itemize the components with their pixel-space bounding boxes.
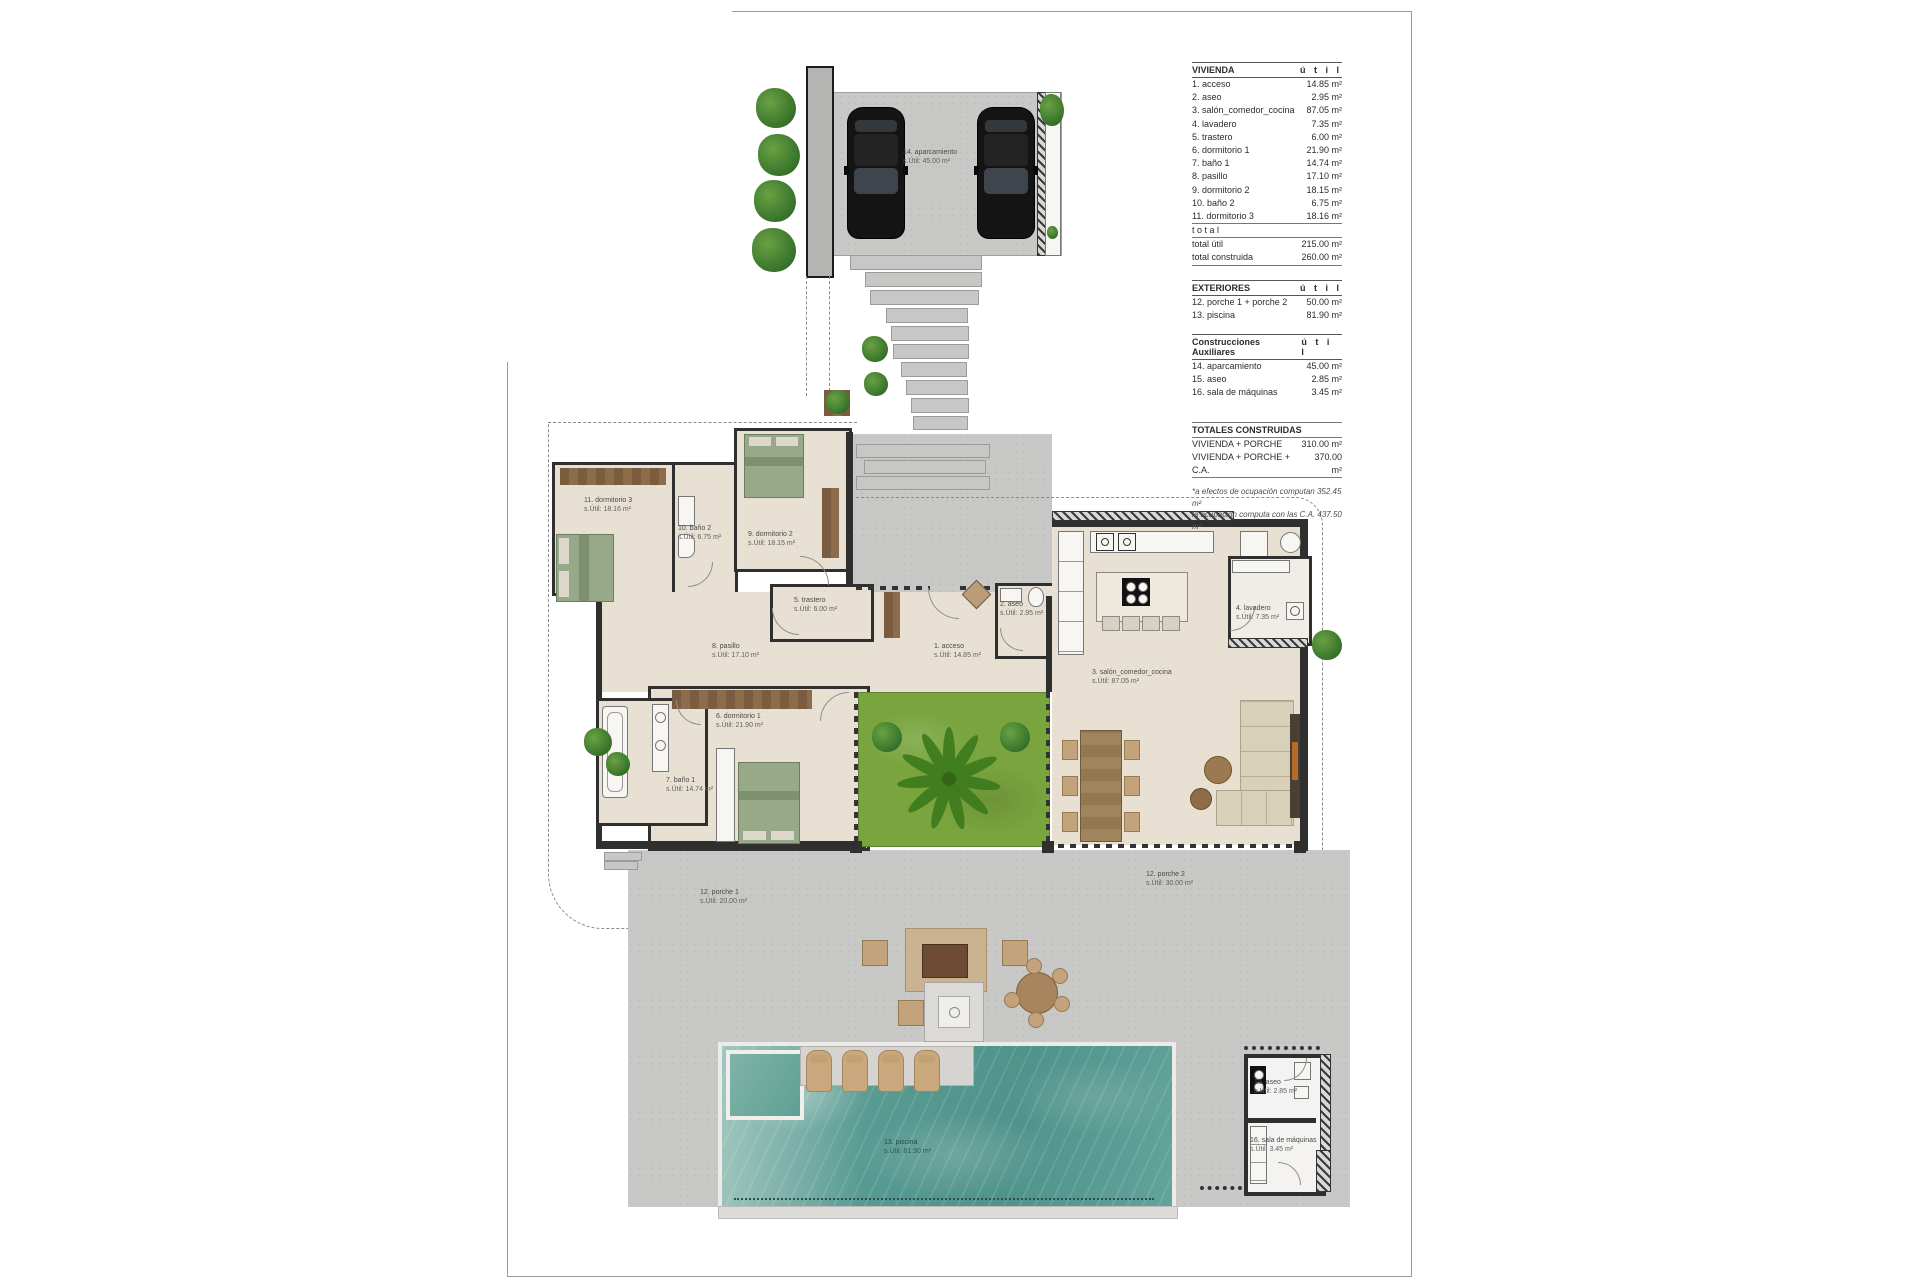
entry-glass-wall xyxy=(856,586,930,590)
wall-outbuilding-divider xyxy=(1248,1118,1316,1123)
dining-chair xyxy=(1062,740,1078,760)
fireplace-accent xyxy=(1292,742,1298,780)
bed-fold xyxy=(739,791,799,800)
room-label-dormitorio-1: 6. dormitorio 1s.Útil: 21.90 m² xyxy=(716,712,763,731)
room-label-bano-2: 10. baño 2s.Útil: 6.75 m² xyxy=(678,524,721,543)
sheet-border-top xyxy=(732,11,1412,12)
sink-bowl xyxy=(655,740,666,751)
planter-bush-icon xyxy=(1040,94,1064,126)
bush-icon xyxy=(872,722,902,752)
legend-row: 10. baño 26.75 m² xyxy=(1192,197,1342,210)
legend-row: 1. acceso14.85 m² xyxy=(1192,78,1342,91)
legend-row: VIVIENDA + PORCHE + C.A.370.00 m² xyxy=(1192,451,1342,478)
car-mirror-left xyxy=(974,166,979,175)
room-label-pasillo: 8. pasillos.Útil: 17.10 m² xyxy=(712,642,759,661)
step xyxy=(856,444,990,458)
dashed-guide xyxy=(806,276,808,396)
legend-title: Construcciones Auxiliares xyxy=(1192,337,1301,357)
step xyxy=(911,398,969,413)
pool-platform xyxy=(924,982,984,1042)
legend-row: 8. pasillo17.10 m² xyxy=(1192,170,1342,183)
room-label-porche-2: 12. porche 2s.Útil: 30.00 m² xyxy=(1146,870,1193,889)
coffee-table xyxy=(922,944,968,978)
legend-section-auxiliares: Construcciones Auxiliaresú t i l 14. apa… xyxy=(1192,334,1342,400)
legend-panel: VIVIENDAú t i l 1. acceso14.85 m² 2. ase… xyxy=(1192,62,1342,532)
legend-total-word: t o t a l xyxy=(1192,223,1342,238)
legend-row: total útil215.00 m² xyxy=(1192,238,1342,251)
step xyxy=(850,255,982,270)
kitchen-tall-cabinets xyxy=(1058,531,1084,655)
sofa-chaise xyxy=(1216,790,1294,826)
dashed-guide xyxy=(829,276,831,396)
bed-pillow xyxy=(559,538,569,564)
pouf xyxy=(1190,788,1212,810)
spa-pool xyxy=(726,1050,804,1120)
room-label-piscina: 13. piscinas.Útil: 81.90 m² xyxy=(884,1138,931,1157)
palm-tree-icon xyxy=(888,718,1010,840)
bush-icon xyxy=(584,728,612,756)
hob-burner xyxy=(1138,582,1148,592)
wardrobe xyxy=(822,488,839,558)
car-roof xyxy=(854,134,898,166)
entry-closet xyxy=(884,592,900,638)
step xyxy=(604,861,638,870)
wardrobe xyxy=(560,468,666,485)
outdoor-chair xyxy=(1052,968,1068,984)
bush-icon xyxy=(606,752,630,776)
oven-knob xyxy=(1101,538,1109,546)
step xyxy=(604,852,642,861)
step xyxy=(913,416,968,430)
car-icon xyxy=(978,108,1034,238)
garage-wall-strip xyxy=(806,66,834,278)
floorplan-sheet: 14. aparcamientos.Útil: 45.00 m² 11. dor… xyxy=(0,0,1920,1280)
bush-icon xyxy=(864,372,888,396)
planter-plant-small-icon xyxy=(1047,226,1058,239)
bar-stool xyxy=(1102,616,1120,631)
legend-row: VIVIENDA + PORCHE310.00 m² xyxy=(1192,437,1342,451)
dining-chair xyxy=(1124,776,1140,796)
car-mirror-right xyxy=(903,166,908,175)
hob-burner xyxy=(1138,594,1148,604)
sun-lounger xyxy=(842,1050,868,1092)
legend-row: 4. lavadero7.35 m² xyxy=(1192,118,1342,131)
bed xyxy=(738,762,800,844)
porch-column xyxy=(1042,841,1054,853)
bathroom-sink xyxy=(678,496,695,526)
room-label-acceso: 1. accesos.Útil: 14.85 m² xyxy=(934,642,981,661)
bed xyxy=(556,534,614,602)
pool-platform-drain xyxy=(949,1007,960,1018)
room-label-aparcamiento: 14. aparcamientos.Útil: 45.00 m² xyxy=(903,148,957,167)
wall-wing-south xyxy=(596,841,866,849)
legend-unit-header: ú t i l xyxy=(1300,65,1342,75)
car-rear-window xyxy=(985,120,1027,132)
outdoor-chair xyxy=(1054,996,1070,1012)
legend-row: total construida260.00 m² xyxy=(1192,251,1342,265)
outdoor-chair xyxy=(862,940,888,966)
legend-row: 13. piscina81.90 m² xyxy=(1192,309,1342,322)
outdoor-chair xyxy=(1002,940,1028,966)
car-mirror-right xyxy=(1033,166,1038,175)
bar-stool xyxy=(1122,616,1140,631)
step xyxy=(891,326,969,341)
car-roof xyxy=(984,134,1028,166)
step xyxy=(893,344,969,359)
legend-section-exteriores: EXTERIORESú t i l 12. porche 1 + porche … xyxy=(1192,280,1342,322)
step xyxy=(856,476,990,490)
bed-pillow xyxy=(749,437,771,446)
bush-icon xyxy=(758,134,800,176)
step xyxy=(886,308,968,323)
hatched-wall-lavadero xyxy=(1228,638,1308,648)
bush-icon xyxy=(1000,722,1030,752)
sofa xyxy=(1240,700,1294,802)
hatched-wall-outbuilding xyxy=(1316,1150,1331,1192)
pool-edge-dotted xyxy=(734,1198,1154,1200)
room-label-dormitorio-2: 9. dormitorio 2s.Útil: 18.15 m² xyxy=(748,530,795,549)
room-label-aseo-15: 15. aseos.Útil: 2.85 m² xyxy=(1254,1078,1297,1097)
wall-salon-left xyxy=(1046,596,1052,692)
room-label-bano-1: 7. baño 1s.Útil: 14.74 m² xyxy=(666,776,713,795)
wall-dotted-band xyxy=(1244,1046,1320,1050)
bush-icon xyxy=(754,180,796,222)
legend-footnote: *a efectos de ocupación computan 352.45 … xyxy=(1192,486,1342,532)
legend-row: 7. baño 114.74 m² xyxy=(1192,157,1342,170)
machinery-counter xyxy=(1250,1126,1267,1184)
dining-chair xyxy=(1062,776,1078,796)
legend-title: TOTALES CONSTRUIDAS xyxy=(1192,425,1302,435)
car-rear-window xyxy=(855,120,897,132)
legend-row: 16. sala de máquinas3.45 m² xyxy=(1192,386,1342,399)
room-label-aseo: 2. aseos.Útil: 2.95 m² xyxy=(1000,600,1043,619)
bed xyxy=(744,434,804,498)
legend-row: 11. dormitorio 318.16 m² xyxy=(1192,210,1342,223)
step xyxy=(870,290,979,305)
bed-pillow xyxy=(743,831,766,840)
room-label-trastero: 5. trasteros.Útil: 6.00 m² xyxy=(794,596,837,615)
washer-door xyxy=(1290,606,1300,616)
pool-deck-strip xyxy=(718,1206,1178,1219)
wall xyxy=(846,432,853,592)
step xyxy=(901,362,967,377)
legend-row: 3. salón_comedor_cocina87.05 m² xyxy=(1192,104,1342,117)
bed-pillow xyxy=(559,571,569,597)
room-label-salon-comedor-cocina: 3. salón_comedor_cocinas.Útil: 87.05 m² xyxy=(1092,668,1172,687)
courtyard-glass-wall xyxy=(1046,692,1050,845)
room-label-lavadero: 4. lavaderos.Útil: 7.35 m² xyxy=(1236,604,1279,623)
salon-glass-wall xyxy=(1058,844,1298,848)
induction-hob xyxy=(1122,578,1150,606)
legend-section-totales: TOTALES CONSTRUIDAS VIVIENDA + PORCHE310… xyxy=(1192,422,1342,479)
round-basin xyxy=(1280,532,1301,553)
sink-bowl xyxy=(655,712,666,723)
legend-title: VIVIENDA xyxy=(1192,65,1235,75)
legend-row: 5. trastero6.00 m² xyxy=(1192,131,1342,144)
bush-icon xyxy=(826,390,850,414)
outdoor-chair xyxy=(898,1000,924,1026)
car-icon xyxy=(848,108,904,238)
step xyxy=(865,272,982,287)
bar-stool xyxy=(1162,616,1180,631)
dining-chair xyxy=(1124,740,1140,760)
legend-unit-header: ú t i l xyxy=(1301,337,1342,357)
outdoor-chair xyxy=(1026,958,1042,974)
bush-icon xyxy=(862,336,888,362)
legend-row: 9. dormitorio 218.15 m² xyxy=(1192,184,1342,197)
courtyard-glass-wall xyxy=(854,692,858,845)
car-windshield xyxy=(854,168,898,194)
dining-chair xyxy=(1124,812,1140,832)
room-label-dormitorio-3: 11. dormitorio 3s.Útil: 18.16 m² xyxy=(584,496,632,515)
porch-column xyxy=(1294,841,1306,853)
bed-pillow xyxy=(771,831,794,840)
sun-lounger xyxy=(914,1050,940,1092)
dining-table xyxy=(1080,730,1122,842)
bed-pillow xyxy=(776,437,798,446)
sheet-border-bottom xyxy=(507,1276,1412,1277)
legend-row: 12. porche 1 + porche 250.00 m² xyxy=(1192,296,1342,309)
legend-row: 15. aseo2.85 m² xyxy=(1192,373,1342,386)
step xyxy=(864,460,986,474)
bar-stool xyxy=(1142,616,1160,631)
hob-burner xyxy=(1126,594,1136,604)
car-windshield xyxy=(984,168,1028,194)
legend-unit-header: ú t i l xyxy=(1300,283,1342,293)
outdoor-chair xyxy=(1004,992,1020,1008)
room-label-sala-de-maquinas: 16. sala de máquinass.Útil: 3.45 m² xyxy=(1250,1136,1317,1155)
dining-chair xyxy=(1062,812,1078,832)
legend-row: 14. aparcamiento45.00 m² xyxy=(1192,360,1342,373)
sun-lounger xyxy=(878,1050,904,1092)
outdoor-chair xyxy=(1028,1012,1044,1028)
step xyxy=(906,380,968,395)
bush-icon xyxy=(1312,630,1342,660)
legend-title: EXTERIORES xyxy=(1192,283,1250,293)
laundry-counter xyxy=(1232,560,1290,573)
sheet-border-left xyxy=(507,362,508,1277)
legend-row: 2. aseo2.95 m² xyxy=(1192,91,1342,104)
legend-section-vivienda: VIVIENDAú t i l 1. acceso14.85 m² 2. ase… xyxy=(1192,62,1342,266)
car-mirror-left xyxy=(844,166,849,175)
room-label-porche-1: 12. porche 1s.Útil: 20.00 m² xyxy=(700,888,747,907)
porch-column xyxy=(850,841,862,853)
oven-knob xyxy=(1123,538,1131,546)
hob-burner xyxy=(1126,582,1136,592)
closet xyxy=(716,748,735,842)
tv-unit xyxy=(1290,714,1300,818)
wall-dotted-band xyxy=(1200,1186,1242,1190)
sheet-border-right xyxy=(1411,11,1412,1277)
legend-row: 6. dormitorio 121.90 m² xyxy=(1192,144,1342,157)
legend-footnote-line2: la ocupación computa con las C.A. 437.50… xyxy=(1192,509,1342,532)
sun-lounger xyxy=(806,1050,832,1092)
pouf xyxy=(1204,756,1232,784)
legend-footnote-line1: *a efectos de ocupación computan 352.45 … xyxy=(1192,486,1342,509)
bed-fold xyxy=(579,535,589,601)
bush-icon xyxy=(752,228,796,272)
bush-icon xyxy=(756,88,796,128)
bed-fold xyxy=(745,457,803,466)
